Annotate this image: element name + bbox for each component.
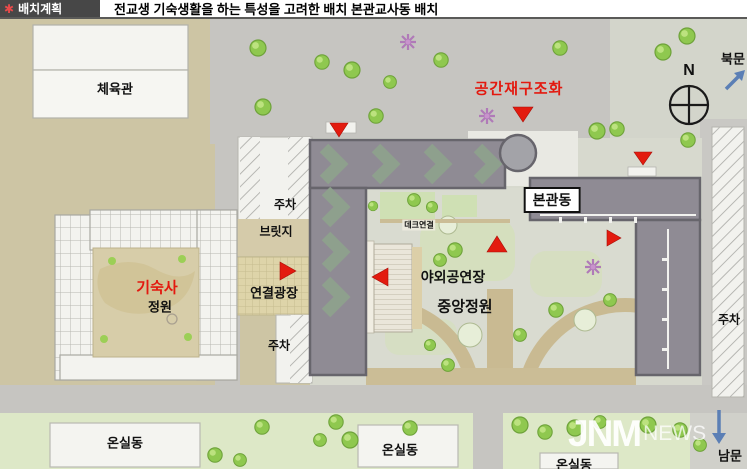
tree-icon	[553, 41, 567, 55]
tree-icon	[655, 44, 671, 60]
tree-icon	[567, 420, 583, 436]
flower-tree-icon	[585, 259, 601, 275]
tree-icon	[679, 28, 695, 44]
tree-icon	[315, 55, 329, 69]
tree-icon	[681, 133, 695, 147]
tree-icon	[384, 76, 397, 89]
tree-icon	[512, 417, 528, 433]
tree-icon	[255, 99, 271, 115]
bridge-label: 브릿지	[259, 223, 292, 240]
site-plan-page: ✱ 배치계획 전교생 기숙생활을 하는 특성을 고려한 배치 본관교사동 배치	[0, 0, 747, 469]
parking-area-right	[712, 127, 744, 397]
tree-icon	[368, 201, 378, 211]
main-building-label: 본관동	[524, 187, 581, 213]
parking-hatch	[290, 315, 312, 383]
bottom-center-road	[473, 413, 503, 469]
greenhouse-2-label: 온실동	[382, 440, 418, 459]
tree-icon	[342, 432, 358, 448]
tree-icon	[514, 329, 527, 342]
page-title: 전교생 기숙생활을 하는 특성을 고려한 배치 본관교사동 배치	[100, 0, 747, 17]
tree-icon	[434, 53, 448, 67]
parking-right-label: 주차	[718, 311, 740, 328]
tree-icon	[329, 415, 343, 429]
connecting-plaza-label: 연결광장	[250, 283, 298, 302]
tree-icon	[314, 434, 327, 447]
flower-tree-icon	[400, 34, 416, 50]
compass-icon	[670, 86, 708, 124]
tree-icon	[448, 243, 462, 257]
gym-label: 체육관	[97, 79, 133, 98]
parking-lower-left-label: 주차	[268, 337, 290, 354]
bottom-road	[0, 385, 747, 415]
tree-icon	[408, 194, 421, 207]
tree-icon	[589, 123, 605, 139]
tree-icon	[344, 62, 360, 78]
north-gate-label: 북문	[721, 49, 745, 68]
gym-building	[33, 25, 188, 118]
flower-tree-icon	[479, 108, 495, 124]
space-restructure-label: 공간재구조화	[475, 78, 564, 99]
tree-icon	[369, 109, 383, 123]
entrance-canopy	[628, 167, 656, 176]
tree-icon	[673, 423, 687, 437]
parking-hatch	[240, 137, 260, 221]
site-plan-map: 체육관 공간재구조화 본관동 주차 브릿지 연결광장 기숙사 정원 야외공연장 …	[0, 19, 747, 469]
star-icon: ✱	[4, 3, 14, 15]
central-garden-label: 중앙정원	[437, 296, 492, 317]
header-bar: ✱ 배치계획 전교생 기숙생활을 하는 특성을 고려한 배치 본관교사동 배치	[0, 0, 747, 19]
tree-icon	[640, 417, 656, 433]
tree-icon	[538, 425, 552, 439]
tree-icon	[208, 448, 222, 462]
tree-icon	[434, 254, 447, 267]
greenhouse-3-label: 온실동	[556, 455, 592, 469]
compass-north-label: N	[683, 62, 695, 80]
header-section-block: ✱ 배치계획	[0, 0, 100, 17]
tree-icon	[594, 416, 607, 429]
tree-icon	[604, 294, 617, 307]
parking-upper-left-label: 주차	[274, 196, 296, 213]
tree-icon	[549, 303, 563, 317]
tree-icon	[442, 359, 455, 372]
round-tower	[500, 135, 536, 171]
tree-icon	[403, 421, 417, 435]
outdoor-stage-label: 야외공연장	[421, 267, 485, 287]
tree-icon	[250, 40, 266, 56]
outdoor-stage	[366, 241, 422, 333]
tree-icon	[234, 454, 247, 467]
tree-icon	[610, 122, 624, 136]
dormitory-label: 기숙사	[136, 277, 177, 298]
south-gate-label: 남문	[718, 446, 742, 465]
tree-icon	[255, 420, 269, 434]
tree-icon	[426, 201, 437, 212]
dormitory-garden-label: 정원	[148, 297, 172, 316]
deck-connection-label: 데크연결	[402, 220, 435, 231]
greenhouse-1-label: 온실동	[107, 433, 143, 452]
tree-icon	[424, 339, 435, 350]
deck-walkway	[380, 219, 510, 223]
section-title: 배치계획	[18, 0, 62, 17]
tree-icon	[694, 439, 707, 452]
